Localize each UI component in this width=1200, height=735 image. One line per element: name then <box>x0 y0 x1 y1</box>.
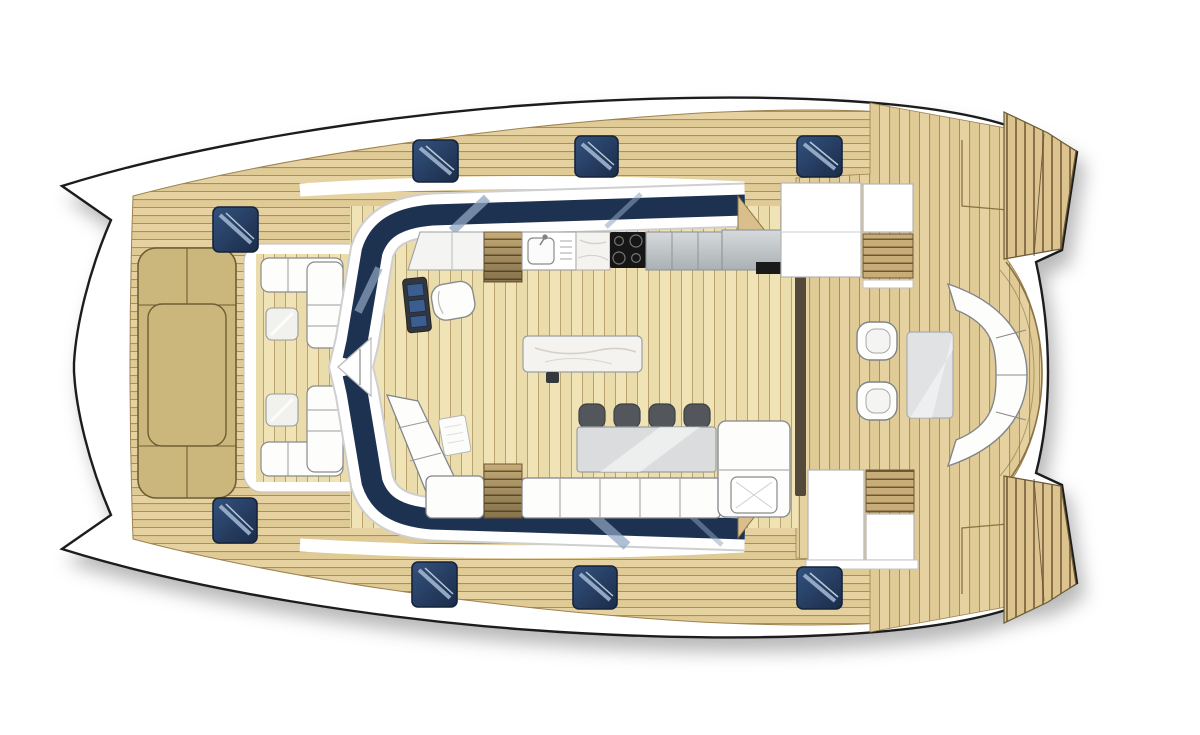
deck-hatch <box>573 566 617 609</box>
dining-chair <box>649 404 675 428</box>
dining-chair <box>614 404 640 428</box>
helm-display <box>409 299 426 313</box>
bow-hatch <box>213 207 258 252</box>
galley-counter-white <box>408 232 484 270</box>
deck-hatch <box>797 567 842 609</box>
outdoor-galley-module <box>781 183 861 277</box>
aft-ledge-top <box>863 280 913 288</box>
companionway-steps-top-shade <box>484 232 522 282</box>
helm-display <box>410 315 427 328</box>
aft-steps-top <box>863 234 913 278</box>
sofa-bottom-run <box>522 478 720 518</box>
bow-hatch <box>213 498 257 543</box>
dining-chair <box>579 404 605 428</box>
sunpad-center-cushion <box>148 304 226 446</box>
outdoor-galley-module <box>863 184 913 232</box>
island-marble-top <box>523 336 642 372</box>
deck-hatch <box>413 140 458 182</box>
aft-chair-cushion <box>866 389 890 413</box>
galley-cabinets <box>646 232 722 270</box>
aft-steps-bottom <box>866 470 914 512</box>
galley-marble-counter <box>576 232 610 270</box>
deck-hatch <box>575 136 618 177</box>
aft-chair-cushion <box>866 329 890 353</box>
aft-module-bottom <box>808 470 864 560</box>
sofa-corner-seat <box>426 476 484 518</box>
foredeck <box>138 248 236 498</box>
companionway-steps-bottom-shade <box>484 464 522 518</box>
aft-module-bottom <box>866 514 914 560</box>
deck-hatch <box>412 562 457 607</box>
deck-plan-canvas <box>0 0 1200 735</box>
deck-hatch <box>797 136 842 177</box>
sink-basin <box>528 238 554 264</box>
dining-chair <box>684 404 710 428</box>
island-handle <box>546 372 559 383</box>
salon-door-frame <box>795 250 806 496</box>
helm-display <box>407 283 424 297</box>
floor-magazine <box>438 415 471 456</box>
deck-plan-svg <box>0 0 1200 735</box>
